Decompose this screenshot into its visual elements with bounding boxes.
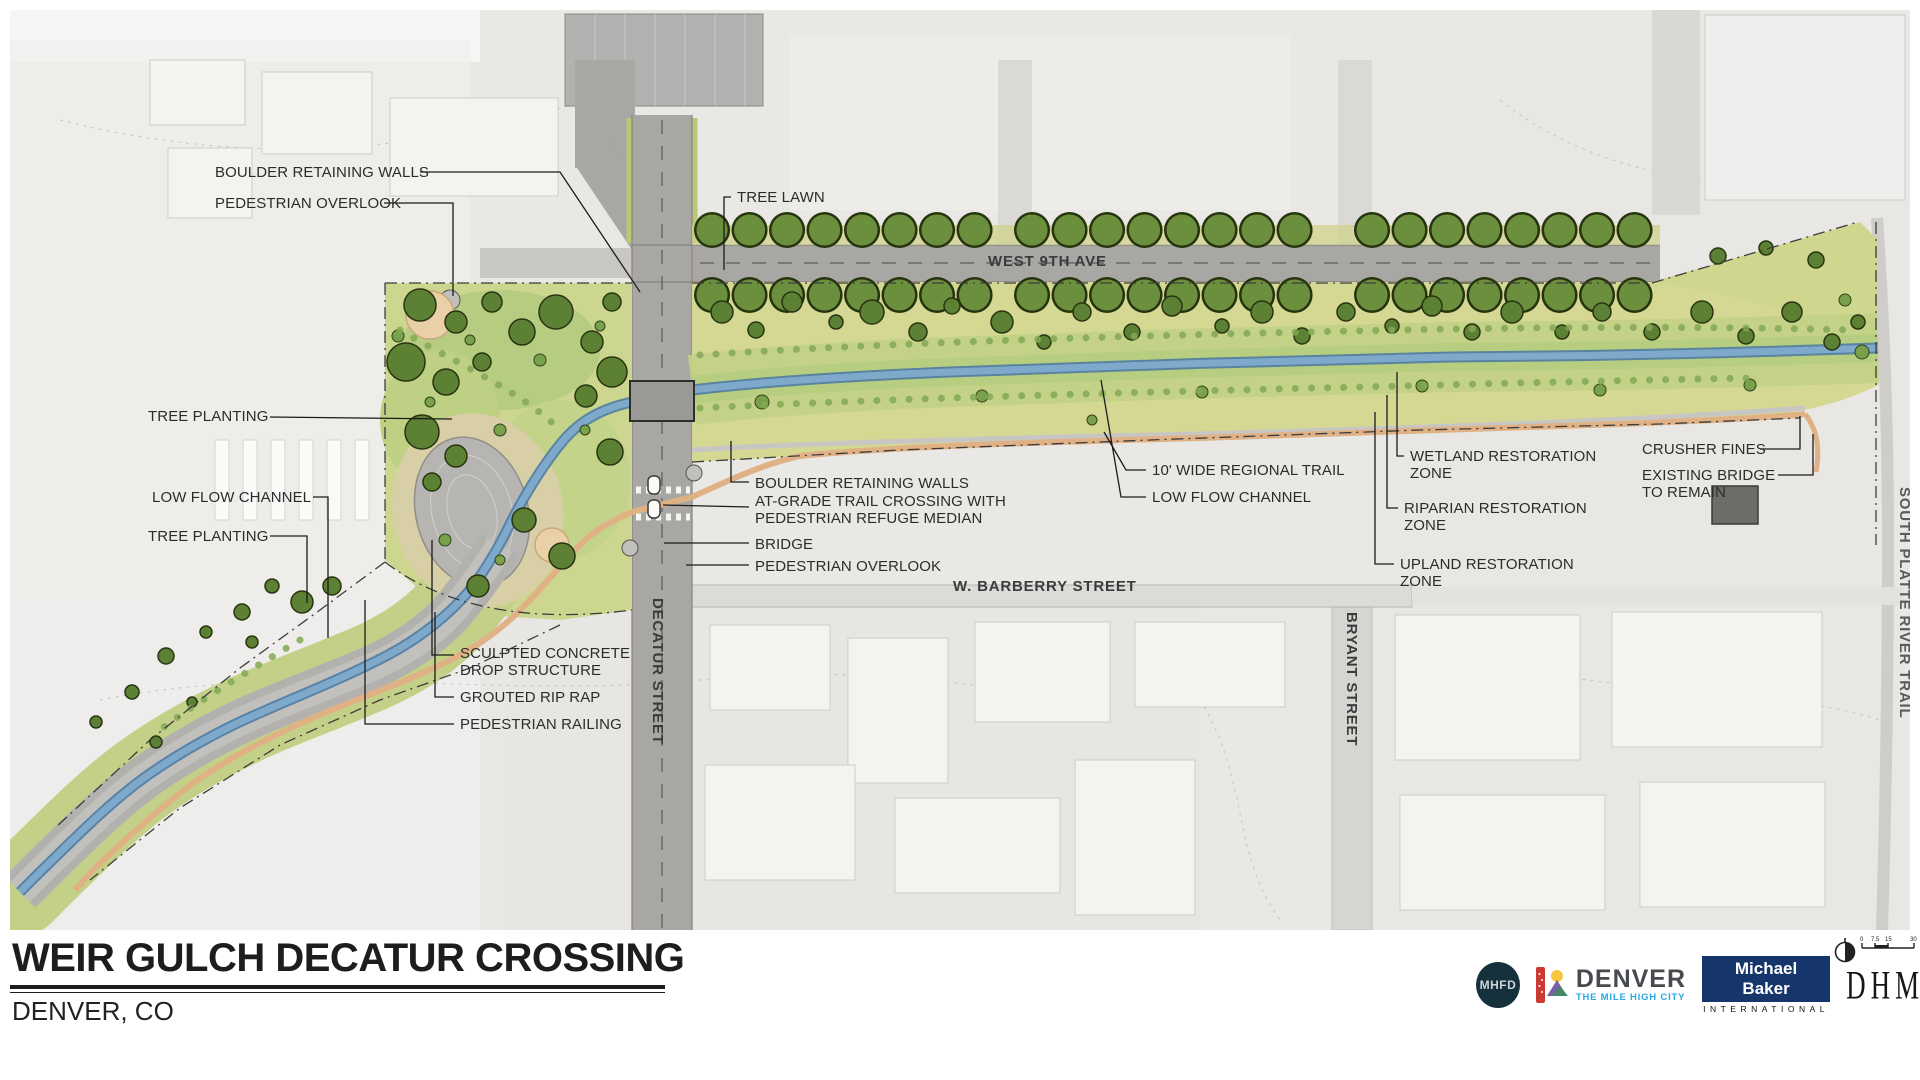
annotation-tree-planting-upper: TREE PLANTING [148, 408, 269, 425]
west-9th-west-stub [480, 248, 632, 278]
refuge-median-island [648, 476, 660, 494]
annotation-grouted-rip-rap: GROUTED RIP RAP [460, 689, 600, 706]
annotation-low-flow-channel-right: LOW FLOW CHANNEL [1152, 489, 1311, 506]
annotation-boulder-retaining-walls-mid: BOULDER RETAINING WALLS [755, 475, 969, 492]
scale-tick: 15 [1885, 937, 1892, 943]
annotation-pedestrian-overlook-mid: PEDESTRIAN OVERLOOK [755, 558, 941, 575]
annotation-tree-planting-lower: TREE PLANTING [148, 528, 269, 545]
annotation-tree-lawn: TREE LAWN [737, 189, 825, 206]
denver-logo: DENVER THE MILE HIGH CITY [1536, 964, 1686, 1006]
street-label-bryant: BRYANT STREET [1343, 612, 1360, 746]
mhfd-logo: MHFD [1476, 962, 1520, 1008]
denver-logo-text: DENVER [1576, 967, 1686, 992]
scale-tick: 0 [1860, 937, 1864, 943]
decatur-bridge [630, 381, 694, 421]
annotation-upland-zone: UPLAND RESTORATION ZONE [1400, 556, 1574, 590]
scale-bar: 0 7.5 15 30 [1860, 937, 1917, 948]
denver-logo-icon [1536, 964, 1570, 1006]
annotation-crusher-fines: CRUSHER FINES [1642, 441, 1766, 458]
dhm-design-logo: DHM DESIGN [1846, 962, 1920, 1009]
annotation-low-flow-channel-left: LOW FLOW CHANNEL [152, 489, 311, 506]
annotation-sculpted-drop-structure: SCULPTED CONCRETE DROP STRUCTURE [460, 645, 630, 679]
annotation-riparian-zone: RIPARIAN RESTORATION ZONE [1404, 500, 1587, 534]
title-underline [10, 985, 665, 993]
annotation-regional-trail: 10' WIDE REGIONAL TRAIL [1152, 462, 1345, 479]
street-label-west-9th-ave: WEST 9TH AVE [988, 253, 1107, 270]
annotation-existing-bridge: EXISTING BRIDGE TO REMAIN [1642, 467, 1775, 501]
annotation-at-grade-crossing: AT-GRADE TRAIL CROSSING WITH PEDESTRIAN … [755, 493, 1006, 527]
logo-row: MHFD DENVER THE MILE HIGH CITY Michael B… [1476, 956, 1920, 1014]
scale-tick: 7.5 [1871, 937, 1880, 943]
street-label-south-platte-river-trail: SOUTH PLATTE RIVER TRAIL [1896, 487, 1913, 718]
denver-logo-tagline: THE MILE HIGH CITY [1576, 992, 1686, 1003]
annotation-boulder-retaining-walls-top: BOULDER RETAINING WALLS [215, 164, 429, 181]
michael-baker-logo-sub: INTERNATIONAL [1702, 1004, 1830, 1014]
page-subtitle: DENVER, CO [12, 996, 174, 1027]
annotation-bridge: BRIDGE [755, 536, 813, 553]
annotation-pedestrian-railing: PEDESTRIAN RAILING [460, 716, 622, 733]
annotation-pedestrian-overlook-top: PEDESTRIAN OVERLOOK [215, 195, 401, 212]
michael-baker-logo: Michael Baker INTERNATIONAL [1702, 956, 1830, 1014]
page-title: WEIR GULCH DECATUR CROSSING [12, 936, 684, 981]
scale-tick: 30 [1910, 937, 1917, 943]
michael-baker-logo-text: Michael Baker [1702, 956, 1830, 1002]
plan-sheet: { "map": { "streets": { "west_9th": "WES… [0, 0, 1920, 1080]
street-label-decatur: DECATUR STREET [649, 598, 666, 745]
site-plan-map [10, 10, 1910, 930]
street-label-barberry: W. BARBERRY STREET [953, 578, 1137, 595]
annotation-wetland-zone: WETLAND RESTORATION ZONE [1410, 448, 1596, 482]
refuge-median-island [648, 500, 660, 518]
